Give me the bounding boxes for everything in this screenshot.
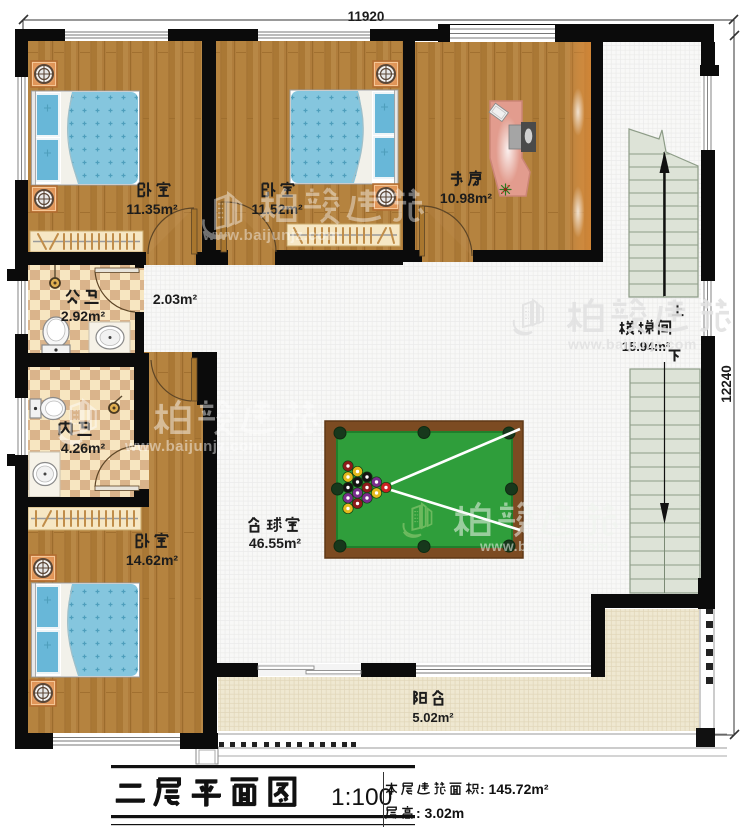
svg-text:www.baijunjz.com: www.baijunjz.com (479, 538, 609, 554)
svg-text:11920: 11920 (348, 9, 385, 24)
svg-text:2.03m²: 2.03m² (153, 291, 198, 307)
svg-text:www.baijunjz.com: www.baijunjz.com (124, 438, 262, 455)
svg-text:11.35m²: 11.35m² (126, 201, 178, 217)
svg-text:14.62m²: 14.62m² (126, 552, 178, 568)
svg-text:www.baijunjz.com: www.baijunjz.com (202, 227, 340, 244)
svg-text:5.02m²: 5.02m² (412, 710, 454, 725)
svg-text:: 3.02m: : 3.02m (416, 805, 464, 821)
svg-text:12240: 12240 (719, 365, 734, 403)
svg-text:: 145.72m²: : 145.72m² (480, 781, 549, 797)
svg-text:46.55m²: 46.55m² (249, 535, 301, 551)
svg-text:10.98m²: 10.98m² (440, 190, 492, 206)
svg-text:2.92m²: 2.92m² (61, 308, 106, 324)
svg-text:www.baijunjz.com: www.baijunjz.com (567, 336, 697, 352)
